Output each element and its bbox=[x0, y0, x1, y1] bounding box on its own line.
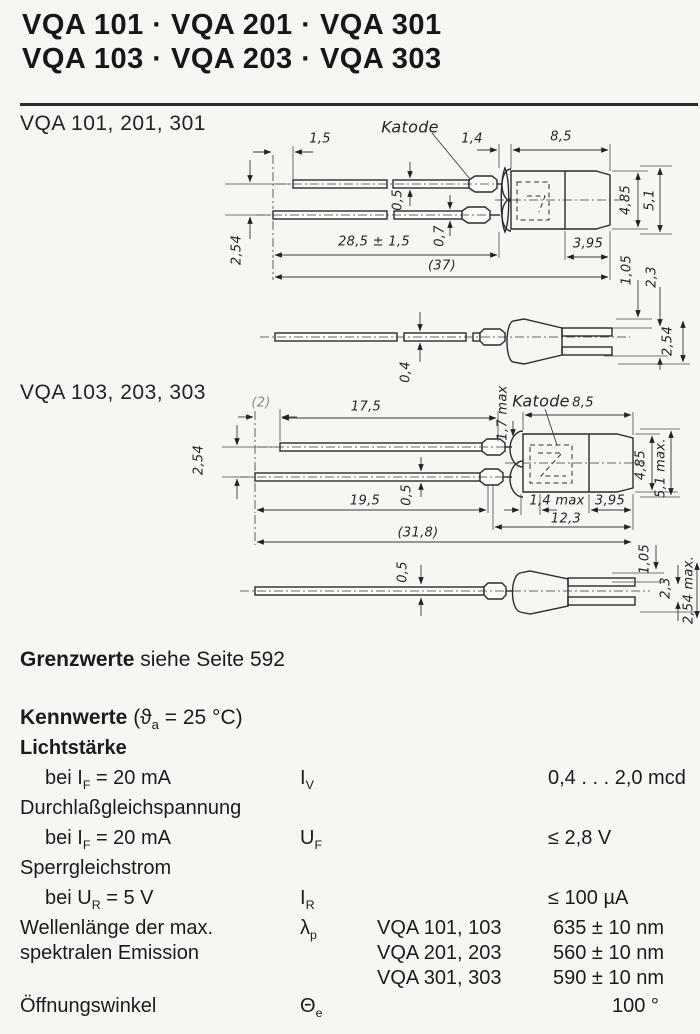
table-row: Öffnungswinkel Θe 100 ° bbox=[0, 995, 700, 1021]
symbol: Θe bbox=[300, 995, 322, 1020]
limits-heading: Grenzwerte bbox=[20, 648, 134, 671]
drawing-vqa-101-201-301: Katode 1,5 1,4 8,5 0,5 0,7 28,5 ± 1,5 (3… bbox=[0, 100, 700, 375]
led-bottom-view bbox=[240, 545, 700, 621]
table-row: bei IF = 20 mA IV 0,4 . . . 2,0 mcd bbox=[0, 767, 700, 793]
value: 635 ± 10 nm bbox=[553, 917, 664, 940]
katode-label: Katode bbox=[512, 392, 570, 411]
table-row: bei IF = 20 mA UF ≤ 2,8 V bbox=[0, 827, 700, 853]
limits-reference-text: siehe Seite 592 bbox=[134, 648, 285, 671]
dim-label: 5,1 max. bbox=[654, 438, 669, 498]
characteristics-table: Lichtstärke bei IF = 20 mA IV 0,4 . . . … bbox=[0, 735, 700, 1034]
dim-label: 1,5 bbox=[309, 132, 331, 147]
dim-label: 0,5 bbox=[400, 484, 415, 506]
dim-label: (2) bbox=[251, 396, 270, 411]
dim-label: 5,1 bbox=[643, 189, 658, 211]
table-row: Lichtstärke bbox=[0, 737, 700, 763]
value: ≤ 2,8 V bbox=[548, 827, 611, 850]
parameter-label: Durchlaßgleichspannung bbox=[20, 797, 241, 820]
dim-label: 4,85 bbox=[634, 450, 649, 480]
dim-label: 0,5 bbox=[391, 189, 406, 211]
dim-label: 17,5 bbox=[351, 400, 381, 415]
dim-label: 4,85 bbox=[619, 185, 634, 215]
dim-label: 1,05 bbox=[638, 544, 653, 574]
value: 560 ± 10 nm bbox=[553, 942, 664, 965]
value: ≤ 100 µA bbox=[548, 887, 628, 910]
title-line-2: VQA 103 · VQA 203 · VQA 303 bbox=[22, 42, 442, 76]
symbol: UF bbox=[300, 827, 322, 852]
characteristics-condition: (ϑa = 25 °C) bbox=[127, 706, 242, 729]
led-side-view bbox=[240, 431, 645, 497]
dim-label: 2,54 bbox=[230, 235, 245, 265]
table-row-wavelength: Wellenlänge der max. spektralen Emission… bbox=[0, 917, 700, 997]
parameter-label: Öffnungswinkel bbox=[20, 995, 156, 1018]
parameter-label: Sperrgleichstrom bbox=[20, 857, 171, 880]
value: 0,4 . . . 2,0 mcd bbox=[548, 767, 686, 790]
condition-label: bei UR = 5 V bbox=[45, 887, 153, 912]
title-line-1: VQA 101 · VQA 201 · VQA 301 bbox=[22, 8, 442, 42]
variant-label: VQA 101, 103 bbox=[377, 917, 502, 940]
table-row: bei UR = 5 V IR ≤ 100 µA bbox=[0, 887, 700, 913]
condition-label: bei IF = 20 mA bbox=[45, 767, 171, 792]
dim-label: 1,05 bbox=[620, 255, 635, 285]
dim-label: 19,5 bbox=[350, 494, 380, 509]
variant-label: VQA 201, 203 bbox=[377, 942, 502, 965]
value: 100 ° bbox=[612, 995, 659, 1018]
led-bottom-view bbox=[260, 312, 630, 364]
condition-label: bei IF = 20 mA bbox=[45, 827, 171, 852]
dim-label: 0,7 bbox=[433, 225, 448, 247]
symbol: λp bbox=[300, 917, 317, 942]
characteristics-heading-line: Kennwerte (ϑa = 25 °C) bbox=[20, 706, 243, 732]
dim-label: (31,8) bbox=[398, 526, 439, 541]
limits-reference-line: Grenzwerte siehe Seite 592 bbox=[20, 648, 285, 672]
datasheet-page: { "page": {"bg": "#f6f6f2", "ink": "#1b1… bbox=[0, 0, 700, 1034]
variant-label: VQA 301, 303 bbox=[377, 967, 502, 990]
dim-label: 2,54 bbox=[661, 326, 676, 356]
parameter-label-line-1: Wellenlänge der max. bbox=[20, 917, 213, 940]
symbol: IR bbox=[300, 887, 315, 912]
dim-label: 1,7 max bbox=[496, 385, 511, 440]
dim-label: 28,5 ± 1,5 bbox=[338, 235, 410, 250]
led-side-view bbox=[256, 168, 622, 232]
dim-label: 2,54 max. bbox=[682, 556, 697, 624]
dim-label: 1,4 max bbox=[529, 494, 584, 509]
dim-label: 2,3 bbox=[645, 266, 660, 288]
dim-label: 2,54 bbox=[192, 445, 207, 475]
table-row: Durchlaßgleichspannung bbox=[0, 797, 700, 823]
katode-leader-line bbox=[545, 409, 557, 445]
page-title: VQA 101 · VQA 201 · VQA 301 VQA 103 · VQ… bbox=[22, 8, 442, 76]
parameter-label-line-2: spektralen Emission bbox=[20, 942, 199, 965]
drawing-vqa-103-203-303: Katode (2) 17,5 1,7 max 8,5 2,54 0,5 19,… bbox=[0, 375, 700, 640]
symbol: IV bbox=[300, 767, 314, 792]
dim-label: 1,4 bbox=[461, 132, 483, 147]
dim-label: 8,5 bbox=[550, 130, 572, 145]
dim-label: 3,95 bbox=[595, 494, 625, 509]
dim-label: 0,5 bbox=[396, 561, 411, 583]
dim-label: 12,3 bbox=[551, 512, 581, 527]
dim-label: 2,3 bbox=[659, 577, 674, 599]
katode-label: Katode bbox=[381, 118, 439, 137]
value: 590 ± 10 nm bbox=[553, 967, 664, 990]
table-row: Sperrgleichstrom bbox=[0, 857, 700, 883]
parameter-label: Lichtstärke bbox=[20, 737, 127, 760]
characteristics-heading: Kennwerte bbox=[20, 706, 127, 729]
dim-label: (37) bbox=[428, 259, 456, 274]
dim-label: 3,95 bbox=[573, 237, 603, 252]
dim-label: 8,5 bbox=[572, 396, 594, 411]
